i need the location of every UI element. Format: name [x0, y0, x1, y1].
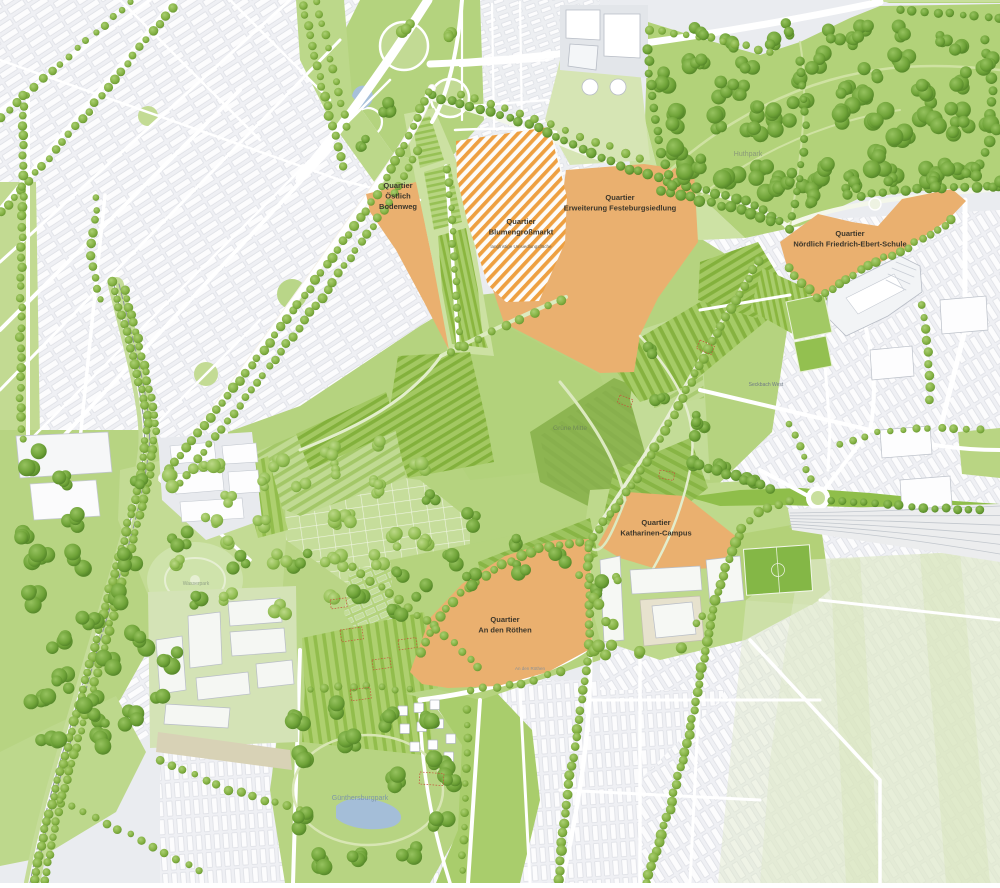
svg-text:langfristige Umsiedlungsfläche: langfristige Umsiedlungsfläche: [490, 244, 552, 249]
svg-text:Seckbach West: Seckbach West: [749, 382, 784, 388]
svg-text:Günthersburgpark: Günthersburgpark: [332, 795, 389, 802]
svg-text:Grüne Mitte: Grüne Mitte: [553, 425, 587, 432]
svg-text:An den Röthen: An den Röthen: [515, 666, 546, 671]
svg-text:Huthpark: Huthpark: [734, 151, 763, 158]
svg-text:Wasserpark: Wasserpark: [183, 581, 210, 587]
